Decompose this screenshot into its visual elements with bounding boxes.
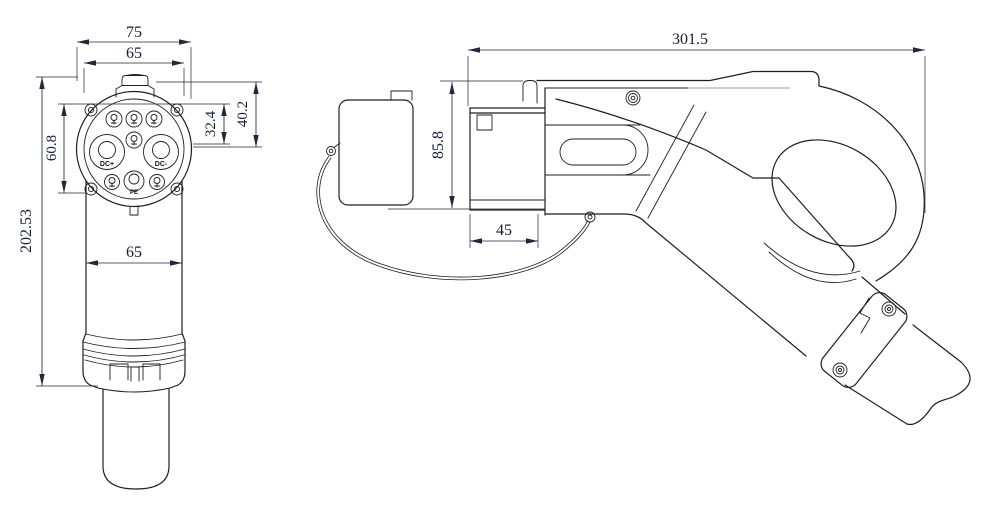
signal-pins-bottom (105, 175, 165, 190)
dc-minus-pin: DC- (144, 135, 179, 170)
dim-overall-height-label: 202.53 (18, 209, 35, 253)
dc-plus-label: DC+ (100, 161, 114, 168)
side-view-dimension-lines (452, 50, 925, 241)
dim-flange-width-label: 75 (126, 24, 142, 41)
gun-body (523, 72, 924, 357)
clamp-screw-top (882, 302, 896, 316)
dim-coupler-depth-label: 45 (496, 222, 512, 239)
front-view-extension-lines (36, 47, 262, 386)
keying-notch (130, 206, 138, 215)
technical-drawing-canvas: 75 65 60.8 202.53 32.4 40.2 65 (0, 0, 1004, 513)
dim-face-height-label: 40.2 (235, 101, 251, 127)
drawing-sheet: 75 65 60.8 202.53 32.4 40.2 65 (0, 0, 1004, 513)
signal-pins-top (106, 111, 162, 127)
dim-pin-height-label: 32.4 (203, 110, 219, 137)
signal-pin-center (126, 132, 142, 148)
cable-gland-collar (83, 333, 185, 392)
face-screw-holes (85, 104, 183, 195)
dc-minus-label: DC- (155, 161, 168, 168)
dust-cap (327, 91, 414, 205)
front-view-drawing: 75 65 60.8 202.53 32.4 40.2 65 (18, 24, 262, 489)
dc-plus-pin: DC+ (90, 135, 125, 170)
dim-face-width-label: 65 (126, 45, 142, 62)
body-screw (626, 91, 640, 105)
dim-screw-span-label: 60.8 (44, 135, 60, 161)
grip-emboss (560, 139, 636, 165)
clamp-screw-bottom (833, 363, 847, 377)
side-view-drawing: 301.5 85.8 45 (318, 31, 970, 425)
pe-pin: PE (124, 171, 144, 196)
dim-overall-length-label: 301.5 (672, 31, 708, 48)
dim-body-height-label: 85.8 (430, 131, 447, 159)
grip-hole (753, 118, 915, 267)
coupler-nozzle (470, 108, 545, 210)
dim-body-width-label: 65 (126, 244, 142, 261)
pe-label: PE (130, 190, 138, 196)
cable-sleeve-front (103, 389, 169, 489)
side-view-extension-lines (388, 56, 925, 248)
connector-face: DC+ DC- PE (77, 92, 192, 216)
handle-clamp (817, 277, 911, 391)
